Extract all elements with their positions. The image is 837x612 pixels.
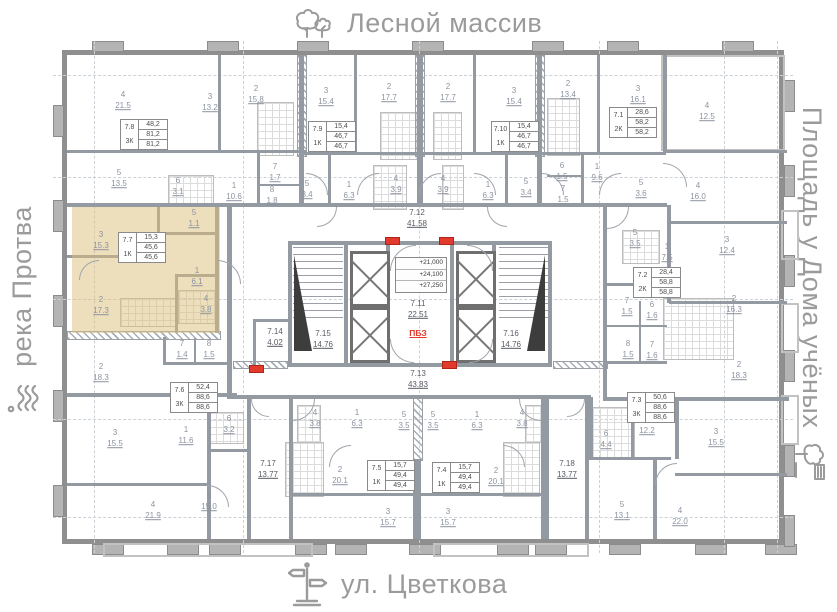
room-label: 111.6	[179, 425, 194, 447]
room-number: 3	[93, 230, 109, 241]
room-number: 1	[591, 162, 602, 173]
room-label: 16.3	[471, 410, 482, 432]
corridor-area: 43.83	[408, 379, 428, 390]
elevation-marker: +21,000+24,100+27,250	[395, 257, 447, 293]
corridor-id: 7.13	[408, 368, 428, 379]
room-number: 2	[488, 466, 504, 477]
room-number: 3	[506, 86, 522, 97]
wall	[581, 152, 584, 206]
room-label: 217.7	[440, 82, 456, 104]
room-area: 3.9	[437, 185, 448, 196]
room-number: 8	[266, 185, 277, 196]
room-label: 43.8	[516, 408, 527, 430]
door-arc	[390, 339, 414, 363]
room-label: 19.6	[591, 162, 602, 184]
apartment-areas: 28,458,858,8	[651, 268, 680, 297]
room-label: 421.9	[145, 500, 161, 522]
wall	[450, 241, 454, 367]
wall	[603, 205, 607, 399]
room-number: 4	[690, 181, 706, 192]
room-label: 71.5	[557, 184, 568, 206]
room-label: 315.5	[708, 427, 724, 449]
pilaster	[695, 544, 727, 555]
label-north-text: Лесной массив	[347, 8, 542, 39]
apartment-type: 1К	[314, 140, 322, 147]
door-arc	[251, 399, 269, 417]
pilaster	[53, 390, 64, 422]
room-area: 15.7	[440, 518, 456, 529]
room-area: 1.5	[622, 350, 633, 361]
room-label: 16.3	[343, 180, 354, 202]
room-area: 15.0	[201, 502, 217, 513]
pilaster	[53, 200, 64, 232]
axis-line	[53, 419, 793, 420]
room-area: 1.1	[188, 219, 199, 230]
room-label: 315.5	[107, 428, 123, 450]
apartment-area-value: 88,6	[189, 393, 217, 403]
room-number: 4	[145, 500, 161, 511]
room-area: 20.1	[488, 477, 504, 488]
room-label: 53.4	[301, 179, 312, 201]
apartment-id-cell: 7.83К	[121, 120, 138, 149]
wall	[288, 241, 552, 245]
pilaster	[784, 350, 795, 382]
room-number: 3	[107, 428, 123, 439]
room-number: 5	[301, 179, 312, 190]
apartment-info-box[interactable]: 7.91К15,446,746,7	[308, 121, 356, 152]
room-label: 43.8	[309, 408, 320, 430]
apartment-info-box[interactable]: 7.101К15,446,746,7	[491, 121, 539, 152]
wall	[194, 338, 196, 364]
room-label: 63.1	[172, 176, 183, 198]
fire-equipment-badge	[249, 365, 264, 373]
room-area: 3.9	[390, 185, 401, 196]
apartment-type: 1К	[497, 140, 505, 147]
door-arc	[567, 399, 585, 417]
door-arc	[329, 445, 351, 467]
room-area: 21.9	[145, 511, 161, 522]
apartment-area-value: 28,4	[652, 268, 680, 278]
room-area: 3.6	[635, 189, 646, 200]
room-area: 13.5	[111, 179, 127, 190]
pilaster	[412, 41, 444, 52]
balcony-outline	[781, 303, 799, 353]
tiled-area	[257, 102, 294, 156]
apartment-id: 7.7	[123, 237, 133, 244]
room-number: 1	[191, 266, 202, 277]
room-area: 1.7	[269, 173, 280, 184]
door-arc	[607, 207, 629, 229]
room-area: 3.8	[309, 419, 320, 430]
apartment-area-value: 45,6	[137, 243, 165, 253]
room-area: 16.0	[690, 192, 706, 203]
corridor-id: 7.17	[258, 458, 278, 469]
wall	[288, 363, 552, 367]
room-number: 4	[309, 408, 320, 419]
wall	[423, 152, 540, 155]
room-label: 61.6	[646, 300, 657, 322]
apartment-area-value: 15,7	[386, 461, 414, 471]
room-area: 15.4	[506, 97, 522, 108]
pilaster	[784, 165, 795, 197]
room-number: 3	[318, 86, 334, 97]
room-area: 3.5	[629, 239, 640, 250]
room-number: 4	[672, 506, 688, 517]
wall	[304, 152, 421, 155]
apartment-id-cell: 7.12К	[610, 108, 627, 137]
room-label: 515.0	[201, 491, 217, 513]
apartment-areas: 15,749,449,4	[385, 461, 414, 490]
apartment-area-value: 49,4	[386, 471, 414, 481]
apartment-areas: 15,446,746,7	[509, 122, 538, 151]
apartment-area-value: 49,4	[451, 473, 479, 483]
room-area: 1.5	[621, 307, 632, 318]
apartment-areas: 15,345,645,6	[136, 233, 165, 262]
corridor-label: 7.1343.83	[408, 368, 428, 390]
corridor-label: 7.1514.76	[313, 328, 333, 350]
wall	[207, 449, 251, 452]
pilaster	[784, 80, 795, 112]
balcony-outline	[781, 395, 799, 445]
room-area: 3.4	[301, 190, 312, 201]
room-number: 2	[440, 82, 456, 93]
room-label: 216.3	[726, 294, 742, 316]
room-number: 2	[332, 465, 348, 476]
apartment-id: 7.10	[494, 126, 508, 133]
room-label: 53.5	[629, 228, 640, 250]
apartment-id: 7.2	[638, 272, 648, 279]
room-area: 9.6	[591, 173, 602, 184]
corridor-area: 4.02	[267, 337, 283, 348]
wall	[675, 397, 679, 459]
label-south-text: ул. Цветкова	[341, 569, 507, 600]
apartment-id-cell: 7.22К	[634, 268, 651, 297]
room-number: 1	[661, 242, 672, 253]
apartment-areas: 48,281,281,2	[138, 120, 167, 149]
balcony-outline	[433, 543, 589, 557]
wall	[663, 55, 667, 152]
room-label: 412.5	[699, 101, 715, 123]
room-label: 513.5	[111, 168, 127, 190]
fire-safe-zone-label: ПБЗ	[409, 328, 426, 338]
river-waves-icon	[4, 380, 40, 414]
room-area: 1.5	[556, 172, 567, 183]
wall	[545, 397, 549, 539]
wall	[288, 241, 292, 367]
room-number: 6	[646, 300, 657, 311]
wall	[589, 397, 593, 457]
wall	[344, 241, 348, 367]
room-number: 5	[520, 177, 531, 188]
corridor-area: 13.77	[258, 469, 278, 480]
corridor-area: 22.51	[408, 309, 428, 320]
room-area: 13.2	[202, 103, 218, 114]
apartment-area-value: 48,2	[139, 120, 167, 130]
room-number: 5	[629, 228, 640, 239]
fire-equipment-badge	[442, 361, 457, 369]
room-label: 81.5	[622, 339, 633, 361]
room-number: 3	[708, 427, 724, 438]
apartment-area-value: 15,4	[510, 122, 538, 132]
room-number: 6	[223, 414, 234, 425]
apartment-area-value: 50,6	[646, 393, 674, 403]
apartment-id-cell: 7.101К	[492, 122, 509, 151]
room-label: 63.2	[223, 414, 234, 436]
room-area: 17.3	[93, 306, 109, 317]
room-area: 21.5	[115, 101, 131, 112]
room-number: 5	[398, 410, 409, 421]
wall	[597, 55, 600, 152]
room-number: 6	[172, 176, 183, 187]
room-number: 4	[115, 90, 131, 101]
room-number: 4	[437, 174, 448, 185]
room-area: 12.2	[639, 426, 655, 437]
room-label: 71.4	[176, 339, 187, 361]
room-area: 1.6	[646, 311, 657, 322]
room-area: 6.3	[343, 191, 354, 202]
corridor-id: 7.14	[267, 326, 283, 337]
apartment-area-value: 88,6	[646, 413, 674, 422]
pilaster	[722, 41, 754, 52]
room-area: 15.7	[380, 518, 396, 529]
room-area: 3.5	[398, 421, 409, 432]
room-area: 6.3	[471, 421, 482, 432]
room-number: 1	[471, 410, 482, 421]
room-number: 1	[343, 180, 354, 191]
room-label: 71.7	[269, 162, 280, 184]
apartment-info-box[interactable]: 7.12К28,658,258,2	[609, 107, 657, 138]
apartment-area-value: 81,2	[139, 140, 167, 149]
room-number: 2	[93, 295, 109, 306]
apartment-id: 7.1	[614, 112, 624, 119]
door-arc	[663, 163, 687, 187]
pilaster	[784, 515, 795, 547]
corridor-id: 7.15	[313, 328, 333, 339]
room-area: 1.6	[646, 351, 657, 362]
label-west-area: река Протва	[0, 160, 44, 460]
room-label: 53.6	[635, 178, 646, 200]
wall	[253, 319, 256, 367]
room-number: 2	[248, 84, 264, 95]
apartment-area-value: 49,4	[451, 483, 479, 492]
room-label: 315.7	[440, 507, 456, 529]
pilaster	[532, 41, 564, 52]
room-label: 217.7	[381, 82, 397, 104]
tiled-area	[547, 98, 580, 156]
room-number: 6	[556, 161, 567, 172]
corridor-id: 7.12	[407, 207, 427, 218]
room-number: 7	[269, 162, 280, 173]
apartment-area-value: 81,2	[139, 130, 167, 140]
apartment-area-value: 58,2	[628, 128, 656, 137]
door-arc	[655, 463, 677, 485]
room-label: 421.5	[115, 90, 131, 112]
elevator-shaft	[350, 307, 390, 363]
room-label: 53.5	[427, 410, 438, 432]
park-building-icon	[792, 441, 832, 483]
apartment-info-box[interactable]: 7.41К15,749,449,4	[432, 462, 480, 493]
balcony-outline	[781, 210, 799, 260]
room-area: 4.4	[600, 440, 611, 451]
room-area: 16.1	[630, 95, 646, 106]
corridor-label: 7.1813.77	[557, 458, 577, 480]
room-label: 315.4	[318, 86, 334, 108]
room-number: 3	[202, 92, 218, 103]
room-label: 220.1	[488, 466, 504, 488]
room-area: 12.5	[699, 112, 715, 123]
room-area: 3.8	[516, 419, 527, 430]
pilaster	[297, 41, 329, 52]
label-south-area: ул. Цветкова	[288, 560, 507, 608]
wall	[653, 460, 657, 539]
room-area: 3.8	[200, 305, 211, 316]
apartment-info-box[interactable]: 7.83К48,281,281,2	[120, 119, 168, 150]
room-label: 315.3	[93, 230, 109, 252]
apartment-info-box[interactable]: 7.71К15,345,645,6	[118, 232, 166, 263]
room-area: 16.3	[726, 305, 742, 316]
room-label: 81.8	[266, 185, 277, 207]
insulated-wall	[413, 397, 423, 461]
wall	[542, 152, 666, 155]
insulated-wall	[553, 361, 608, 369]
room-label: 316.1	[630, 84, 646, 106]
room-area: 3.4	[520, 188, 531, 199]
room-number: 5	[635, 178, 646, 189]
apartment-area-value: 46,7	[327, 132, 355, 142]
room-number: 5	[188, 208, 199, 219]
room-number: 8	[203, 339, 214, 350]
door-arc	[217, 260, 241, 284]
room-area: 1.5	[557, 195, 568, 206]
apartment-area-value: 46,7	[327, 142, 355, 151]
room-number: 3	[380, 507, 396, 518]
apartment-type: 1К	[124, 251, 132, 258]
apartment-id: 7.9	[313, 126, 323, 133]
wall	[639, 301, 641, 363]
fire-equipment-badge	[439, 237, 454, 245]
room-area: 18.3	[731, 371, 747, 382]
room-label: 51.1	[188, 208, 199, 230]
pilaster	[207, 41, 239, 52]
corridor-area: 13.77	[557, 469, 577, 480]
apartment-areas: 15,749,449,4	[450, 463, 479, 492]
room-label: 17.5	[661, 242, 672, 264]
apartment-type: 2К	[615, 126, 623, 133]
room-number: 2	[731, 360, 747, 371]
apartment-id: 7.8	[125, 124, 135, 131]
apartment-id-cell: 7.91К	[309, 122, 326, 151]
room-number: 4	[200, 294, 211, 305]
room-area: 15.5	[708, 438, 724, 449]
apartment-id-cell: 7.33К	[628, 393, 645, 422]
door-arc	[467, 245, 493, 271]
room-area: 18.3	[93, 373, 109, 384]
apartment-id-cell: 7.63К	[171, 383, 188, 412]
room-label: 215.8	[248, 84, 264, 106]
label-west-text: река Протва	[7, 206, 38, 367]
fire-equipment-badge	[385, 237, 400, 245]
wall	[67, 483, 207, 486]
room-area: 17.7	[440, 93, 456, 104]
apartment-areas: 28,658,258,2	[627, 108, 656, 137]
wall	[257, 150, 260, 206]
room-area: 3.2	[223, 425, 234, 436]
wall	[473, 55, 476, 152]
apartment-areas: 52,488,688,6	[188, 383, 217, 412]
corridor-label: 7.1122.51	[408, 298, 428, 320]
room-label: 312.4	[719, 235, 735, 257]
balcony-outline	[661, 55, 785, 151]
corridor-area: 41.58	[407, 218, 427, 229]
room-number: 1	[482, 180, 493, 191]
apartment-area-value: 88,6	[646, 403, 674, 413]
wall	[669, 221, 787, 224]
room-area: 13.1	[614, 511, 630, 522]
room-number: 2	[560, 79, 576, 90]
room-number: 5	[111, 168, 127, 179]
room-number: 6	[600, 429, 611, 440]
corridor-label: 7.1713.77	[258, 458, 278, 480]
room-number: 3	[440, 507, 456, 518]
room-area: 6.1	[191, 277, 202, 288]
floor-plan-page: { "surroundings": { "top": "Лесной масси…	[0, 0, 837, 612]
wall	[218, 55, 221, 152]
room-area: 20.1	[332, 476, 348, 487]
room-number: 5	[614, 500, 630, 511]
room-number: 2	[381, 82, 397, 93]
pilaster	[335, 544, 367, 555]
apartment-type: 2К	[639, 286, 647, 293]
wall	[328, 152, 331, 206]
door-arc	[317, 207, 337, 227]
apartment-info-box[interactable]: 7.33К50,688,688,6	[627, 392, 675, 423]
label-north-area: Лесной массив	[292, 2, 542, 44]
room-number: 4	[390, 174, 401, 185]
apartment-info-box[interactable]: 7.51К15,749,449,4	[367, 460, 415, 491]
apartment-area-value: 15,3	[137, 233, 165, 243]
apartment-area-value: 15,7	[451, 463, 479, 473]
apartment-area-value: 88,6	[189, 403, 217, 412]
apartment-type: 3К	[633, 411, 641, 418]
room-number: 5	[201, 491, 217, 502]
apartment-info-box[interactable]: 7.22К28,458,858,8	[633, 267, 681, 298]
apartment-id: 7.3	[632, 397, 642, 404]
room-number: 1	[351, 408, 362, 419]
wall	[227, 333, 232, 399]
room-label: 43.9	[437, 174, 448, 196]
tiled-area	[663, 298, 734, 360]
room-number: 7	[646, 340, 657, 351]
room-number: 2	[93, 362, 109, 373]
room-label: 213.4	[560, 79, 576, 101]
room-number: 1	[226, 181, 242, 192]
room-area: 15.8	[248, 95, 264, 106]
room-label: 315.4	[506, 86, 522, 108]
balcony-outline	[103, 543, 313, 557]
room-number: 1	[179, 425, 194, 436]
apartment-type: 1К	[438, 481, 446, 488]
apartment-type: 3К	[176, 401, 184, 408]
apartment-info-box[interactable]: 7.63К52,488,688,6	[170, 382, 218, 413]
apartment-area-value: 58,2	[628, 118, 656, 128]
room-label: 16.3	[482, 180, 493, 202]
room-label: 43.8	[200, 294, 211, 316]
wall	[218, 150, 306, 153]
apartment-area-value: 45,6	[137, 253, 165, 262]
door-arc	[487, 207, 507, 227]
room-label: 53.5	[398, 410, 409, 432]
room-label: 315.7	[380, 507, 396, 529]
